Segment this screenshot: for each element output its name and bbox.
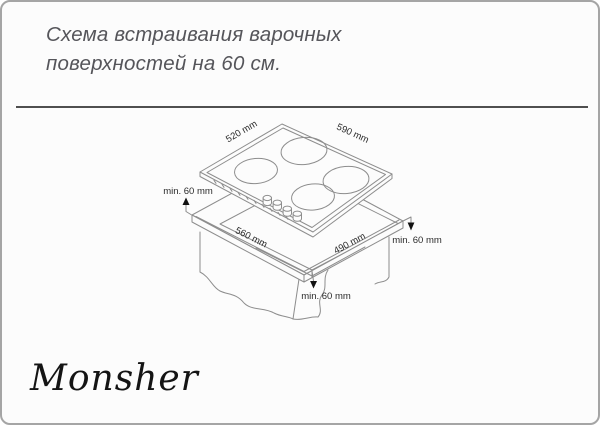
clearance-back-label: min. 60 mm — [163, 186, 213, 197]
installation-diagram: 560 mm 490 mm min. 60 mm min. 60 mm min.… — [152, 107, 472, 337]
title-line-1: Схема встраивания варочных — [46, 20, 526, 49]
clearance-front-label: min. 60 mm — [301, 291, 351, 302]
title-line-2: поверхностей на 60 см. — [46, 49, 526, 78]
clearance-right-label: min. 60 mm — [392, 235, 442, 246]
knob — [283, 206, 291, 216]
arrow-up-icon — [183, 198, 190, 206]
document-page: Схема встраивания варочных поверхностей … — [0, 0, 600, 425]
knob — [273, 200, 281, 210]
knob — [293, 211, 301, 221]
brand-logo: Monsher — [30, 358, 199, 399]
knob — [263, 195, 271, 205]
hob-width-label: 590 mm — [335, 122, 371, 146]
arrow-down-icon — [310, 281, 317, 289]
page-title: Схема встраивания варочных поверхностей … — [46, 20, 526, 78]
arrow-down-icon — [408, 223, 415, 231]
